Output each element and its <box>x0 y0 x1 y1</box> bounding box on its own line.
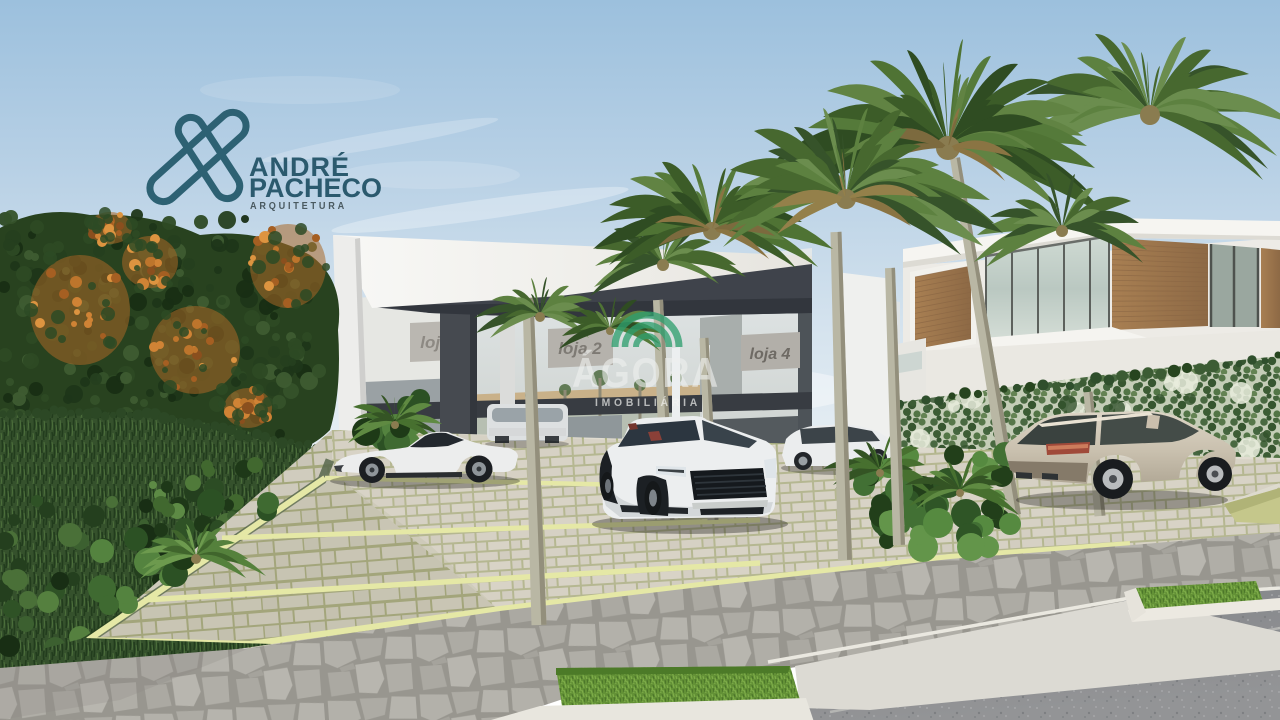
svg-text:PACHECO: PACHECO <box>249 173 382 203</box>
svg-text:ÁGORA: ÁGORA <box>572 349 720 396</box>
svg-text:IMOBILIÁRIA: IMOBILIÁRIA <box>595 396 701 409</box>
svg-text:loja 4: loja 4 <box>750 346 791 363</box>
svg-text:ARQUITETURA: ARQUITETURA <box>250 200 347 212</box>
